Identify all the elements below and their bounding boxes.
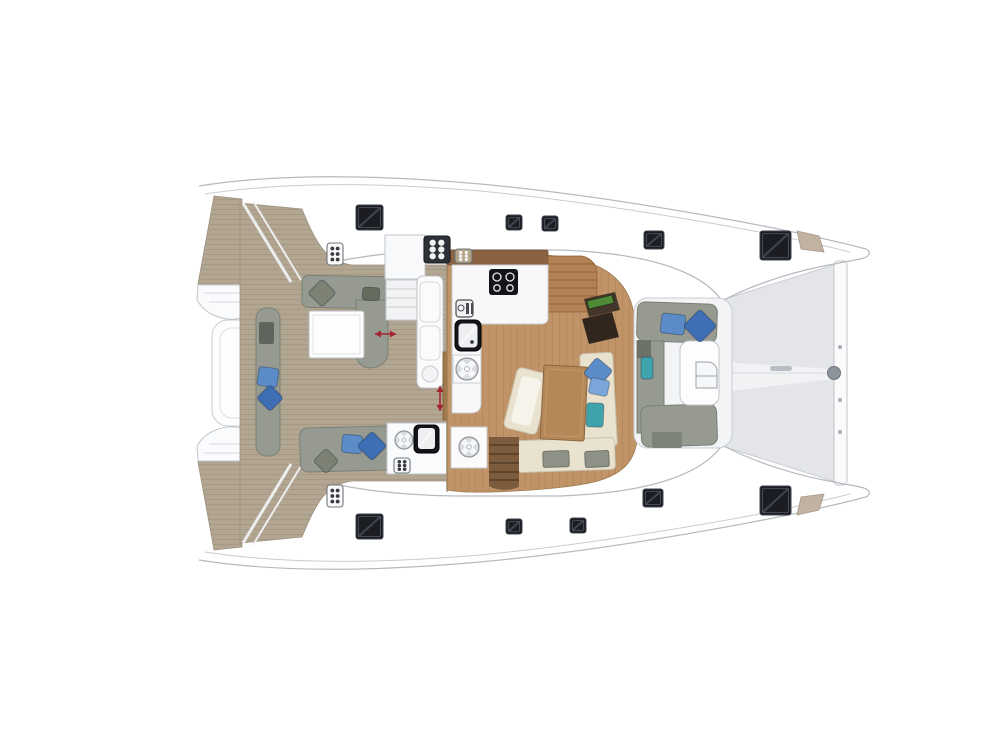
- deck-hatch: [506, 519, 522, 534]
- dinette-cushion: [543, 451, 570, 468]
- pillow: [586, 403, 604, 428]
- beam-fitting-dot: [838, 430, 842, 434]
- stern-deck-port: [198, 196, 242, 284]
- beam-fitting-dot: [838, 345, 842, 349]
- transom-bench-armrest: [259, 322, 274, 344]
- deck-hatch: [356, 205, 383, 230]
- clutch-panel: [424, 236, 450, 263]
- deck-hatch: [356, 514, 383, 539]
- deck-hatch: [644, 231, 664, 249]
- table-cupholder: [696, 362, 717, 388]
- cockpit-table: [309, 311, 364, 358]
- clutch-panel: [327, 485, 343, 507]
- helm-steps: [386, 280, 417, 320]
- stern-deck-starboard: [198, 462, 242, 550]
- beam-fitting-dot: [838, 398, 842, 402]
- forward-cockpit-step: [652, 432, 682, 448]
- deck-hatch: [760, 486, 791, 515]
- helm-console: [385, 235, 425, 279]
- pillow: [588, 377, 610, 397]
- cooktop: [489, 269, 518, 295]
- deck-hatch: [542, 216, 558, 231]
- pillow: [257, 366, 279, 388]
- faucet-icon-bar: [471, 303, 473, 314]
- pillow: [362, 287, 380, 301]
- clutch-panel: [394, 458, 410, 473]
- clutch-panel: [327, 243, 343, 265]
- ice-maker: [422, 366, 438, 382]
- bowsprit-fitting: [828, 367, 841, 380]
- forward-sofa-armrest: [637, 340, 651, 358]
- foredeck: [722, 231, 869, 515]
- anchor-chain-plate: [770, 366, 792, 371]
- catamaran-deck-plan-page: [0, 0, 1007, 755]
- anchor-locker-port: [797, 231, 824, 252]
- sink-drain: [470, 340, 474, 344]
- deck-hatch: [506, 215, 522, 230]
- clutch-panel: [455, 249, 472, 263]
- catamaran-deck-plan: [0, 0, 1007, 755]
- deck-fitting-wheel: [395, 431, 413, 449]
- anchor-locker-starboard: [797, 494, 824, 515]
- deck-fitting-wheel: [453, 355, 481, 383]
- pillow: [641, 357, 653, 379]
- deck-hatch: [570, 518, 586, 533]
- faucet-icon-bar: [466, 303, 469, 314]
- deck-hatch: [643, 489, 663, 507]
- pillow: [660, 313, 686, 335]
- dinette-cushion: [585, 450, 610, 467]
- deck-fitting-wheel: [451, 427, 487, 468]
- deck-hatch: [760, 231, 791, 260]
